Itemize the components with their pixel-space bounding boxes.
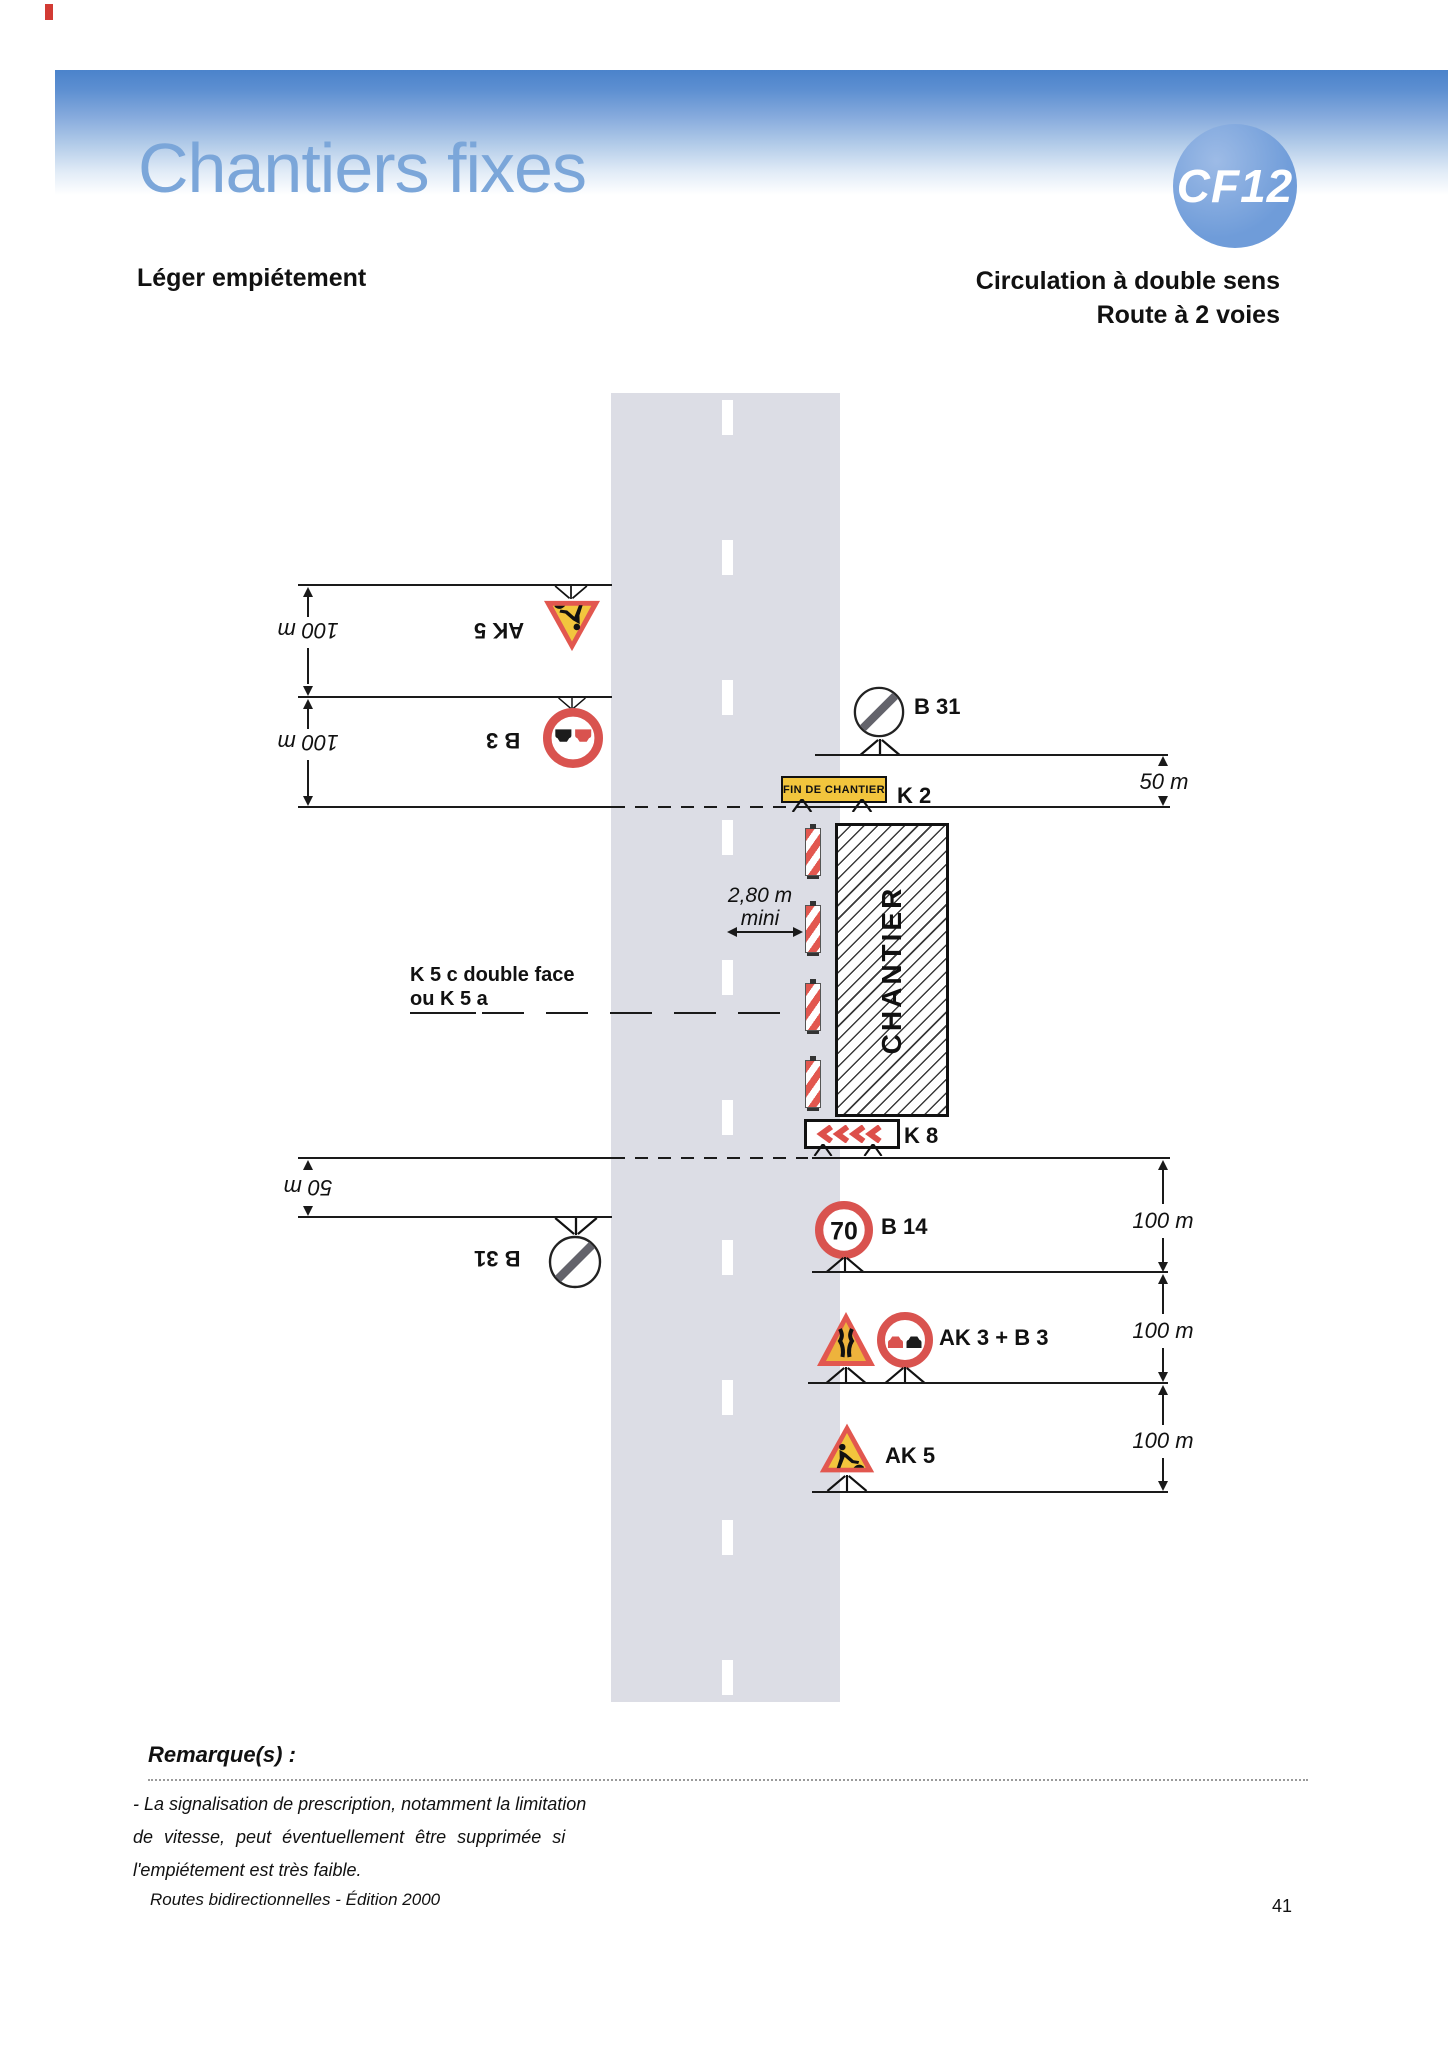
remarks-line: l'empiétement est très faible.: [133, 1854, 586, 1887]
dimension-arrow-up: [303, 699, 313, 709]
dimension-arrow-up: [1158, 1385, 1168, 1395]
sign-label-ak3-b3: AK 3 + B 3: [939, 1325, 1048, 1351]
dimension-arrow-left: [727, 927, 737, 937]
dimension-arrow-down: [1158, 796, 1168, 806]
remarks-divider: [148, 1779, 1308, 1781]
sign-ground-line: [808, 1382, 1168, 1384]
dimension-arrow-up: [1158, 1274, 1168, 1284]
footer-edition: Routes bidirectionnelles - Édition 2000: [150, 1890, 440, 1910]
sign-ground-line: [815, 754, 1168, 756]
dimension-line: [731, 931, 801, 933]
sign-label-b14: B 14: [881, 1214, 927, 1240]
dimension-line: [812, 1157, 1170, 1159]
sign-ground-line: [812, 1271, 1168, 1273]
manual-page: Chantiers fixes CF12 Léger empiétement C…: [0, 0, 1448, 2048]
k5c-beacon: [805, 983, 821, 1031]
panel-leg: [810, 1144, 836, 1156]
dimension-arrow-down: [303, 796, 313, 806]
dimension-label: 50 m: [270, 1174, 346, 1200]
sign-tripod: [819, 1475, 875, 1491]
dimension-line: [1162, 1348, 1164, 1374]
roadworks-warning-sign-inverted: [540, 598, 604, 654]
sign-label-ak5-top: AK 5: [474, 617, 524, 643]
end-of-restrictions-sign: [852, 684, 906, 740]
remarks-heading: Remarque(s) :: [148, 1742, 296, 1768]
dimension-arrow-up: [303, 1160, 313, 1170]
work-zone-label: CHANTIER: [876, 886, 908, 1055]
k5-annotation: K 5 c double face ou K 5 a: [410, 963, 575, 1011]
sign-tripod: [548, 1218, 604, 1235]
annotation-leader-dashes: [482, 1012, 800, 1014]
dimension-line: [1162, 1170, 1164, 1204]
road-center-dashed-line: [722, 393, 733, 1702]
cf12-badge: CF12: [1173, 124, 1297, 248]
dimension-label: 100 m: [1120, 1208, 1206, 1234]
dimension-label: 100 m: [1120, 1318, 1206, 1344]
road-narrows-warning-sign: [814, 1309, 878, 1369]
dimension-line: [800, 806, 1170, 808]
dimension-line: [298, 806, 612, 808]
sign-label-b31-left: B 31: [474, 1245, 520, 1271]
dimension-line: [307, 760, 309, 796]
sign-label-ak5-bottom: AK 5: [885, 1443, 935, 1469]
no-overtaking-sign: [877, 1312, 933, 1368]
dimension-arrow-up: [1158, 756, 1168, 766]
k5c-beacon: [805, 1060, 821, 1108]
subtitle-right-line1: Circulation à double sens: [976, 264, 1280, 298]
dimension-arrow-right: [793, 927, 803, 937]
annotation-underline: [410, 1012, 476, 1014]
chevron-left-icon: [811, 1125, 893, 1143]
scan-artifact-mark: [45, 4, 53, 20]
lane-width-value: 2,80 m: [712, 884, 808, 907]
speed-limit-70-sign: 70: [815, 1201, 873, 1259]
cf12-badge-label: CF12: [1177, 159, 1293, 213]
dimension-label: 100 m: [270, 729, 346, 755]
dimension-line: [1162, 1458, 1164, 1482]
dimension-arrow-down: [1158, 1372, 1168, 1382]
dimension-arrow-down: [303, 686, 313, 696]
page-number: 41: [1272, 1896, 1292, 1917]
k2-panel-text: FIN DE CHANTIER: [783, 784, 885, 796]
panel-leg: [860, 1144, 886, 1156]
k5-annotation-line1: K 5 c double face: [410, 963, 575, 987]
subtitle-right: Circulation à double sens Route à 2 voie…: [976, 264, 1280, 332]
dimension-label: 100 m: [270, 617, 346, 643]
no-overtaking-sign-inverted: [543, 708, 603, 768]
dimension-line: [307, 648, 309, 684]
k5-annotation-line2: ou K 5 a: [410, 987, 575, 1011]
dimension-line-dashed: [612, 806, 802, 808]
remarks-line: de vitesse, peut éventuellement être sup…: [133, 1821, 586, 1854]
sign-ground-line: [812, 1491, 1168, 1493]
subtitle-right-line2: Route à 2 voies: [976, 298, 1280, 332]
roadworks-warning-sign: [817, 1419, 877, 1477]
dimension-label: 50 m: [1126, 769, 1202, 795]
sign-label-k8: K 8: [904, 1123, 938, 1149]
dimension-arrow-down: [1158, 1481, 1168, 1491]
dimension-arrow-down: [303, 1206, 313, 1216]
dimension-line: [307, 709, 309, 729]
dimension-line: [1162, 1395, 1164, 1425]
speed-limit-value: 70: [830, 1218, 858, 1245]
sign-tripod: [877, 1367, 933, 1383]
lane-width-label: 2,80 m mini: [712, 884, 808, 930]
dimension-line: [1162, 1284, 1164, 1314]
dimension-arrow-up: [1158, 1160, 1168, 1170]
dimension-line: [298, 1157, 612, 1159]
page-title: Chantiers fixes: [138, 128, 586, 208]
dimension-arrow-up: [303, 587, 313, 597]
subtitle-left: Léger empiétement: [137, 264, 366, 293]
sign-label-b3-top: B 3: [486, 727, 520, 753]
remarks-line: - La signalisation de prescription, nota…: [133, 1788, 586, 1821]
dimension-label: 100 m: [1120, 1428, 1206, 1454]
sign-tripod: [818, 1367, 874, 1383]
remarks-paragraph: - La signalisation de prescription, nota…: [133, 1788, 586, 1887]
k5c-beacon: [805, 828, 821, 876]
dimension-line-dashed: [612, 1157, 808, 1159]
end-of-restrictions-sign-inverted: [547, 1234, 603, 1290]
sign-label-b31-right: B 31: [914, 694, 960, 720]
work-zone-area: CHANTIER: [835, 823, 949, 1117]
dimension-line: [1162, 1238, 1164, 1264]
